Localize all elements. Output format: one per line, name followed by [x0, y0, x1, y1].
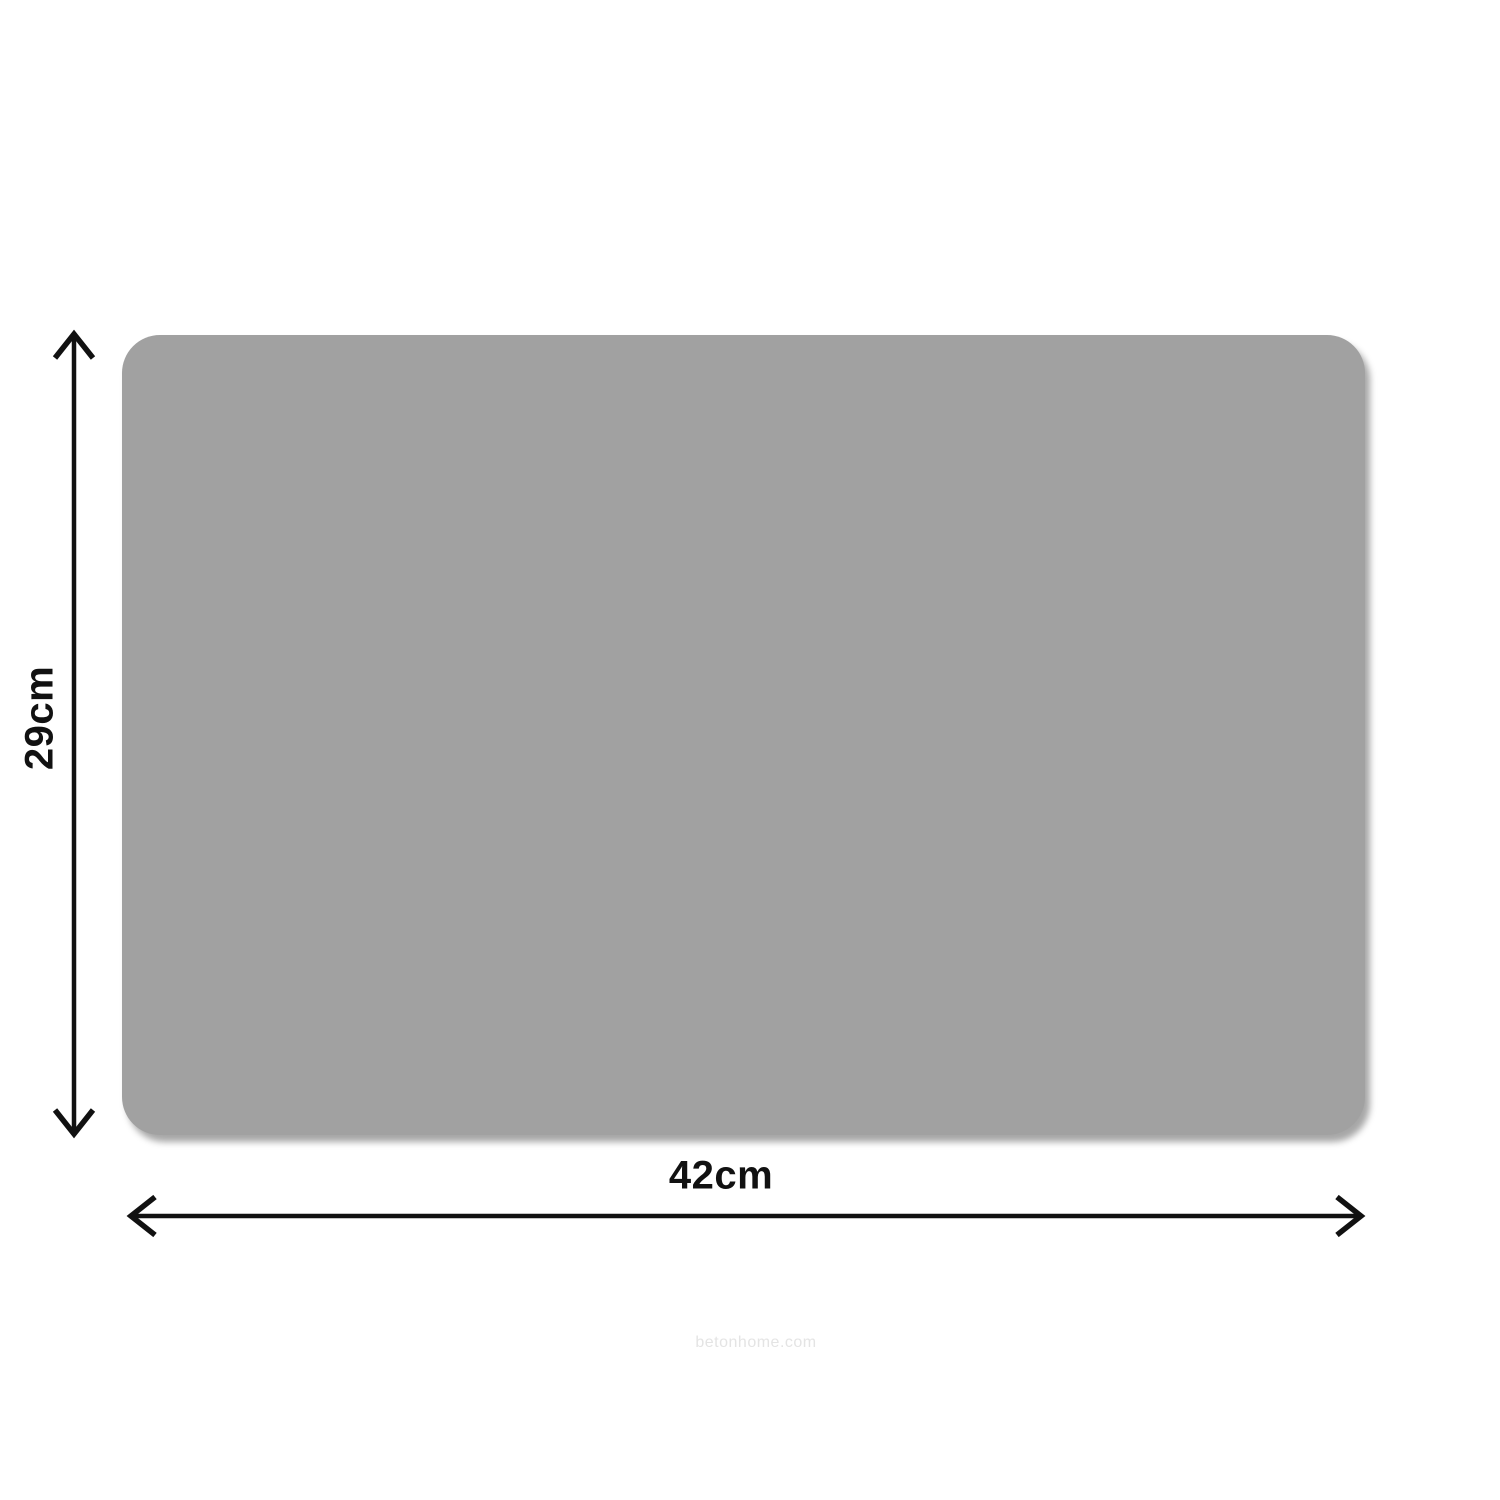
horizontal-dimension-arrow	[128, 1196, 1364, 1236]
product-dimension-diagram: 29cm 42cm betonhome.com	[0, 0, 1500, 1500]
watermark: betonhome.com	[695, 1334, 816, 1352]
width-label: 42cm	[669, 1154, 773, 1199]
mat-rectangle	[122, 335, 1365, 1135]
height-label: 29cm	[18, 666, 63, 770]
